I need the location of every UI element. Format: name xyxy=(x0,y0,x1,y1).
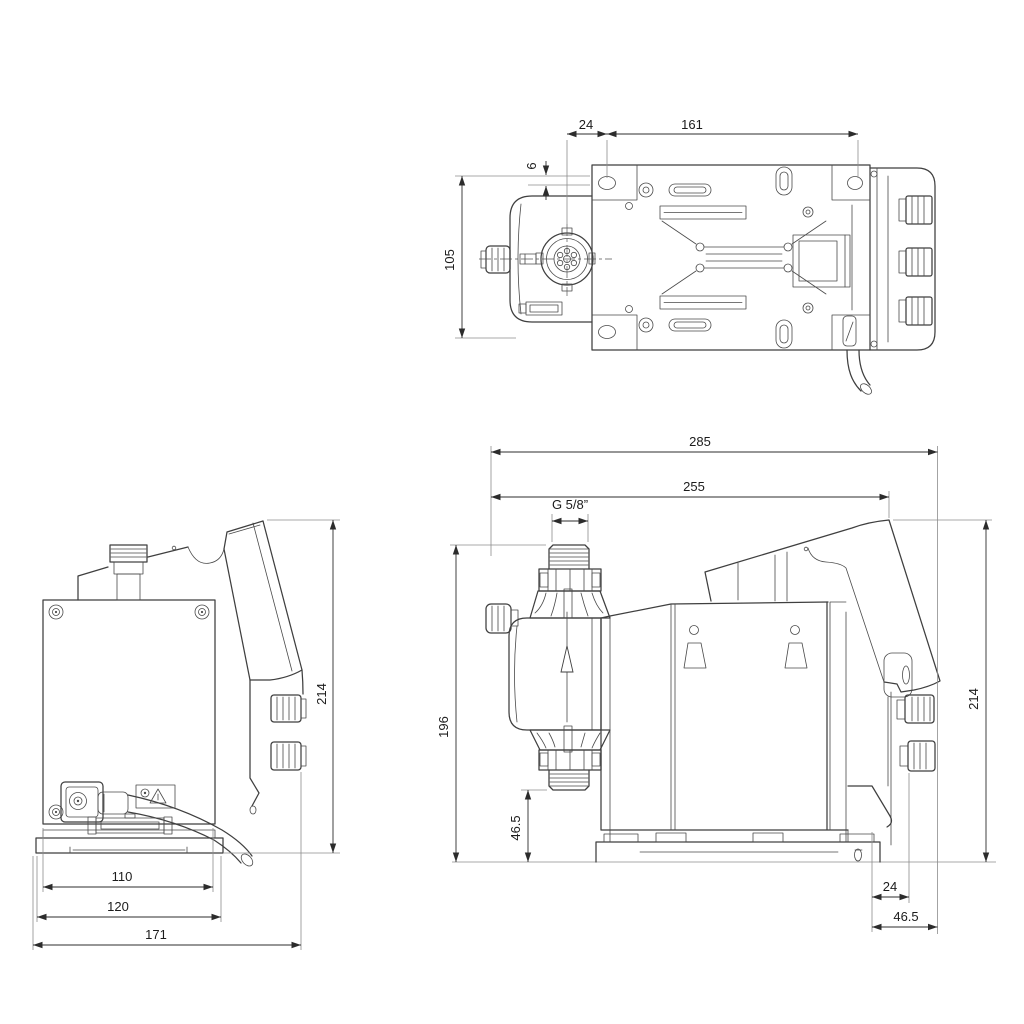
dim-label: 214 xyxy=(314,683,329,705)
power-cable xyxy=(128,795,252,856)
cable-gland-knob xyxy=(271,695,306,722)
vent-valve-knob xyxy=(486,604,518,633)
side-view: 285 255 G 5/8” 196 46.5 214 xyxy=(436,434,996,934)
dim-label: 105 xyxy=(442,249,457,271)
dim-label: 46.5 xyxy=(893,909,918,924)
dim-top-105: 105 xyxy=(442,176,516,338)
dim-label: 24 xyxy=(883,879,897,894)
dim-side-196: 196 xyxy=(436,545,546,862)
dim-label: 285 xyxy=(689,434,711,449)
cable-gland-knob xyxy=(899,196,932,224)
dim-label: 161 xyxy=(681,117,703,132)
rear-foot xyxy=(848,786,891,827)
rear-discharge-fitting xyxy=(110,545,147,600)
suction-valve xyxy=(530,726,610,790)
dim-label: 214 xyxy=(966,688,981,710)
dim-label: 46.5 xyxy=(508,815,523,840)
dim-side-46-5-left: 46.5 xyxy=(508,790,547,862)
dim-side-thread: G 5/8” xyxy=(552,497,588,542)
top-view: 24 161 6 105 xyxy=(442,117,935,396)
cable-gland-knob xyxy=(899,248,932,276)
dim-rear-120: 120 xyxy=(37,856,221,922)
top-view-control-end xyxy=(847,168,935,396)
top-view-baseplate xyxy=(592,165,870,350)
rear-view: 214 110 120 171 xyxy=(33,520,340,950)
dim-top-161: 161 xyxy=(607,117,858,178)
screw xyxy=(49,605,63,619)
dim-rear-171: 171 xyxy=(33,772,301,950)
dim-label: 6 xyxy=(524,162,539,169)
side-view-base xyxy=(596,830,880,862)
rear-view-warning-label xyxy=(136,785,175,808)
dim-top-6: 6 xyxy=(455,161,590,200)
keyhole-mounting-slot xyxy=(684,626,706,669)
dim-label: 196 xyxy=(436,716,451,738)
dim-side-46-5-bottom: 46.5 xyxy=(872,909,938,927)
dim-label: 171 xyxy=(145,927,167,942)
cable-gland-knob xyxy=(897,695,934,723)
page: 24 161 6 105 xyxy=(0,0,1024,1024)
dim-side-255: 255 xyxy=(491,479,889,518)
cable-gland-knob xyxy=(899,297,932,325)
dim-top-24: 24 xyxy=(567,117,607,224)
dim-label: 120 xyxy=(107,899,129,914)
rear-view-backplate xyxy=(43,600,215,824)
dim-label: 255 xyxy=(683,479,705,494)
dim-label: 110 xyxy=(112,869,133,884)
cable-gland-knob xyxy=(271,742,306,770)
side-view-housing xyxy=(601,602,912,861)
discharge-valve xyxy=(530,545,610,618)
rear-view-control-arm xyxy=(224,521,306,814)
cable-gland-knob xyxy=(900,741,935,771)
dim-label: G 5/8” xyxy=(552,497,588,512)
rear-view-base xyxy=(36,830,340,853)
dim-label: 24 xyxy=(579,117,593,132)
side-view-dosing-head xyxy=(486,545,610,790)
flow-direction-arrow xyxy=(561,612,573,722)
side-view-control-panel xyxy=(705,520,940,771)
technical-drawing: 24 161 6 105 xyxy=(0,0,1024,1024)
keyhole-mounting-slot xyxy=(785,626,807,669)
rear-view-top-cover xyxy=(78,521,263,600)
screw xyxy=(195,605,209,619)
top-view-valve-knob xyxy=(481,246,510,273)
power-cable xyxy=(847,350,874,396)
